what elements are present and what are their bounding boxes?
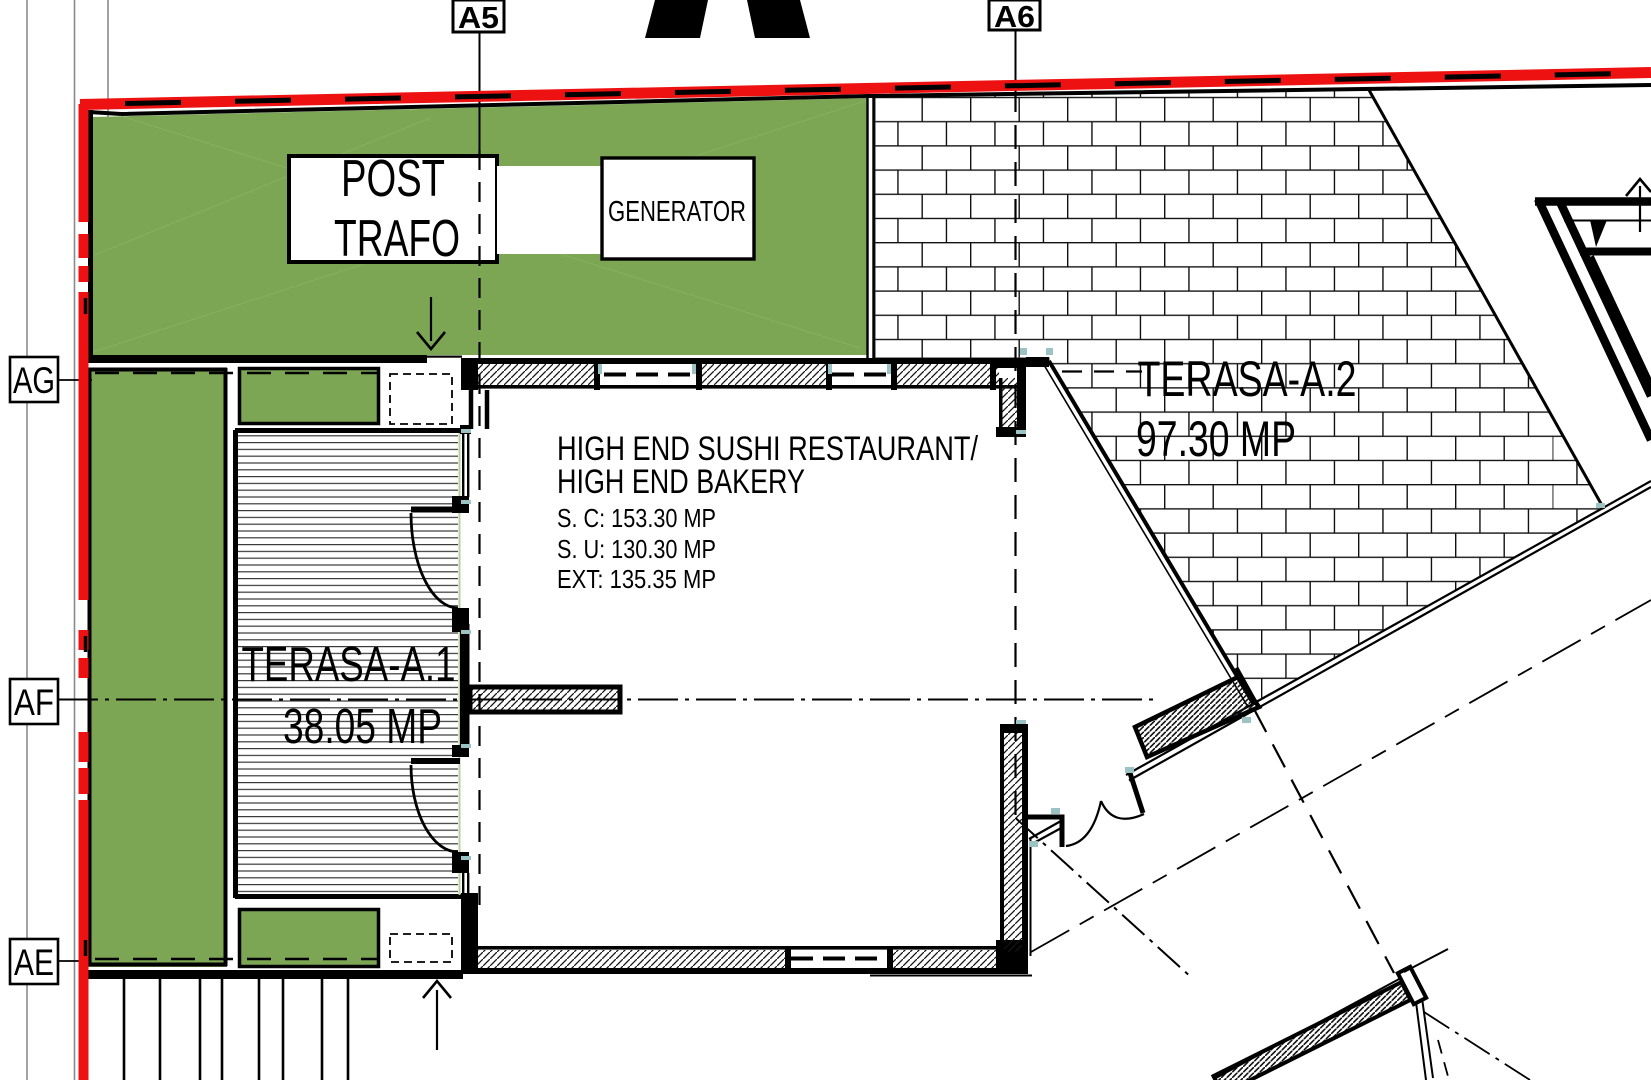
svg-text:S. C: 153.30 MP: S. C: 153.30 MP xyxy=(557,503,716,533)
svg-text:AF: AF xyxy=(14,682,54,723)
svg-text:POST: POST xyxy=(341,150,445,208)
svg-text:AG: AG xyxy=(13,360,55,401)
svg-text:S. U: 130.30 MP: S. U: 130.30 MP xyxy=(557,534,716,564)
svg-text:HIGH END BAKERY: HIGH END BAKERY xyxy=(557,463,805,501)
svg-text:97.30 MP: 97.30 MP xyxy=(1136,411,1296,467)
svg-text:TERASA-A.1: TERASA-A.1 xyxy=(242,638,456,692)
svg-text:GENERATOR: GENERATOR xyxy=(608,196,746,228)
svg-text:38.05 MP: 38.05 MP xyxy=(283,700,442,754)
svg-text:TERASA-A.2: TERASA-A.2 xyxy=(1138,351,1357,407)
svg-text:AE: AE xyxy=(14,942,54,983)
svg-text:EXT: 135.35 MP: EXT: 135.35 MP xyxy=(557,564,716,594)
svg-text:TRAFO: TRAFO xyxy=(334,210,460,268)
svg-text:A6: A6 xyxy=(994,0,1035,34)
svg-text:A5: A5 xyxy=(458,0,499,35)
